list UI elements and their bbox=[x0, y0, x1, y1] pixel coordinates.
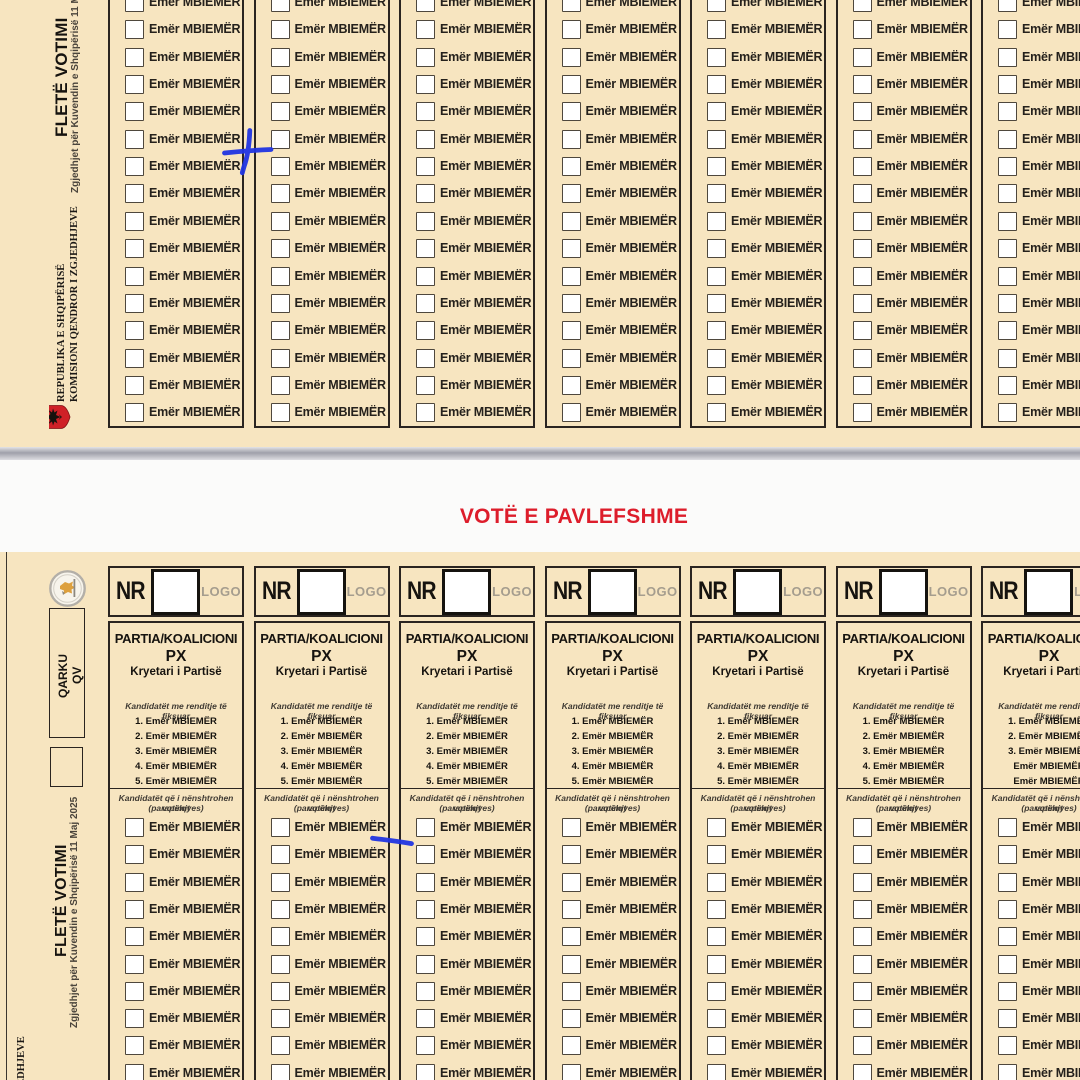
candidate-row: Emër MBIEMËR bbox=[838, 0, 970, 12]
candidate-name-label: Emër MBIEMËR bbox=[1022, 1066, 1080, 1080]
candidate-checkbox[interactable] bbox=[998, 403, 1017, 422]
candidate-checkbox[interactable] bbox=[416, 0, 435, 12]
candidate-checkbox[interactable] bbox=[853, 20, 872, 39]
candidate-checkbox[interactable] bbox=[271, 1036, 290, 1055]
candidate-checkbox[interactable] bbox=[562, 239, 581, 258]
candidate-name-label: Emër MBIEMËR bbox=[149, 296, 240, 310]
candidate-name-label: Emër MBIEMËR bbox=[1022, 405, 1080, 419]
candidate-checkbox[interactable] bbox=[853, 75, 872, 94]
candidate-row: Emër MBIEMËR bbox=[256, 927, 388, 946]
candidate-checkbox[interactable] bbox=[853, 267, 872, 286]
candidate-checkbox[interactable] bbox=[562, 955, 581, 974]
candidate-checkbox[interactable] bbox=[853, 1009, 872, 1028]
candidate-name-label: Emër MBIEMËR bbox=[149, 269, 240, 283]
candidate-checkbox[interactable] bbox=[125, 1064, 144, 1080]
candidate-checkbox[interactable] bbox=[853, 403, 872, 422]
candidate-name-label: Emër MBIEMËR bbox=[877, 0, 968, 9]
candidate-checkbox[interactable] bbox=[707, 130, 726, 149]
candidate-checkbox[interactable] bbox=[562, 157, 581, 176]
candidate-checkbox[interactable] bbox=[707, 1009, 726, 1028]
candidate-checkbox[interactable] bbox=[271, 239, 290, 258]
candidate-checkbox[interactable] bbox=[416, 403, 435, 422]
candidate-checkbox[interactable] bbox=[998, 927, 1017, 946]
candidate-checkbox[interactable] bbox=[125, 0, 144, 12]
candidate-name-label: Emër MBIEMËR bbox=[295, 1066, 386, 1080]
candidate-checkbox[interactable] bbox=[998, 20, 1017, 39]
candidate-checkbox[interactable] bbox=[998, 349, 1017, 368]
candidate-row: Emër MBIEMËR bbox=[983, 157, 1080, 176]
party-header: NRLOGO bbox=[108, 566, 244, 617]
candidate-checkbox[interactable] bbox=[562, 267, 581, 286]
candidate-checkbox[interactable] bbox=[853, 184, 872, 203]
candidate-row: Emër MBIEMËR bbox=[256, 184, 388, 203]
candidate-name-label: Emër MBIEMËR bbox=[149, 0, 240, 9]
candidate-checkbox[interactable] bbox=[416, 239, 435, 258]
candidate-name-label: Emër MBIEMËR bbox=[295, 77, 386, 91]
candidate-checkbox[interactable] bbox=[707, 900, 726, 919]
candidate-row: Emër MBIEMËR bbox=[547, 927, 679, 946]
candidate-checkbox[interactable] bbox=[416, 294, 435, 313]
candidate-checkbox[interactable] bbox=[271, 48, 290, 67]
candidate-checkbox[interactable] bbox=[707, 157, 726, 176]
candidate-checkbox[interactable] bbox=[707, 48, 726, 67]
candidate-checkbox[interactable] bbox=[562, 349, 581, 368]
candidate-name-label: Emër MBIEMËR bbox=[440, 957, 531, 971]
candidate-checkbox[interactable] bbox=[125, 900, 144, 919]
candidate-checkbox[interactable] bbox=[562, 48, 581, 67]
candidate-checkbox[interactable] bbox=[416, 102, 435, 121]
candidate-checkbox[interactable] bbox=[416, 20, 435, 39]
candidate-checkbox[interactable] bbox=[562, 102, 581, 121]
candidate-checkbox[interactable] bbox=[853, 982, 872, 1001]
candidate-name-label: Emër MBIEMËR bbox=[731, 847, 822, 861]
candidate-checkbox[interactable] bbox=[416, 1064, 435, 1080]
candidate-row: Emër MBIEMËR bbox=[983, 1036, 1080, 1055]
logo-placeholder-label: LOGO bbox=[200, 584, 242, 599]
candidate-checkbox[interactable] bbox=[125, 321, 144, 340]
candidate-checkbox[interactable] bbox=[853, 0, 872, 12]
candidate-checkbox[interactable] bbox=[707, 349, 726, 368]
candidate-checkbox[interactable] bbox=[707, 818, 726, 837]
candidate-checkbox[interactable] bbox=[562, 0, 581, 12]
candidate-checkbox[interactable] bbox=[562, 1064, 581, 1080]
candidate-checkbox[interactable] bbox=[125, 927, 144, 946]
candidate-checkbox[interactable] bbox=[271, 102, 290, 121]
candidate-checkbox[interactable] bbox=[853, 48, 872, 67]
candidate-name-label: Emër MBIEMËR bbox=[731, 241, 822, 255]
candidate-row: Emër MBIEMËR bbox=[401, 900, 533, 919]
candidate-checkbox[interactable] bbox=[125, 349, 144, 368]
candidate-checkbox[interactable] bbox=[562, 818, 581, 837]
fixed-candidate-name: 5. Emër MBIEMËR bbox=[547, 776, 679, 787]
candidate-checkbox[interactable] bbox=[416, 900, 435, 919]
candidate-name-label: Emër MBIEMËR bbox=[586, 269, 677, 283]
candidate-row: Emër MBIEMËR bbox=[547, 321, 679, 340]
candidate-checkbox[interactable] bbox=[707, 267, 726, 286]
candidate-row: Emër MBIEMËR bbox=[692, 349, 824, 368]
candidate-checkbox[interactable] bbox=[416, 982, 435, 1001]
candidate-checkbox[interactable] bbox=[271, 845, 290, 864]
candidate-row: Emër MBIEMËR bbox=[983, 927, 1080, 946]
candidate-checkbox[interactable] bbox=[562, 321, 581, 340]
candidate-checkbox[interactable] bbox=[416, 927, 435, 946]
candidate-name-label: Emër MBIEMËR bbox=[440, 405, 531, 419]
candidate-row: Emër MBIEMËR bbox=[692, 102, 824, 121]
candidate-checkbox[interactable] bbox=[271, 184, 290, 203]
candidate-name-label: Emër MBIEMËR bbox=[1022, 1038, 1080, 1052]
candidate-checkbox[interactable] bbox=[271, 927, 290, 946]
party-candidate-column: Emër MBIEMËREmër MBIEMËREmër MBIEMËREmër… bbox=[690, 0, 826, 428]
candidate-row: Emër MBIEMËR bbox=[838, 376, 970, 395]
candidate-name-label: Emër MBIEMËR bbox=[440, 1038, 531, 1052]
candidate-checkbox[interactable] bbox=[416, 157, 435, 176]
candidate-checkbox[interactable] bbox=[707, 845, 726, 864]
candidate-checkbox[interactable] bbox=[562, 403, 581, 422]
candidate-checkbox[interactable] bbox=[271, 403, 290, 422]
candidate-checkbox[interactable] bbox=[271, 982, 290, 1001]
candidate-name-label: Emër MBIEMËR bbox=[877, 1066, 968, 1080]
candidate-checkbox[interactable] bbox=[416, 267, 435, 286]
candidate-name-label: Emër MBIEMËR bbox=[149, 22, 240, 36]
candidate-checkbox[interactable] bbox=[125, 818, 144, 837]
candidate-name-label: Emër MBIEMËR bbox=[877, 104, 968, 118]
party-header: NRLOGO bbox=[399, 566, 535, 617]
candidate-checkbox[interactable] bbox=[562, 376, 581, 395]
candidate-checkbox[interactable] bbox=[271, 75, 290, 94]
candidate-row: Emër MBIEMËR bbox=[256, 294, 388, 313]
candidate-checkbox[interactable] bbox=[707, 212, 726, 231]
candidate-name-label: Emër MBIEMËR bbox=[586, 323, 677, 337]
candidate-checkbox[interactable] bbox=[998, 212, 1017, 231]
preferential-header-sub: (parapëlqyes) bbox=[547, 803, 679, 813]
candidate-checkbox[interactable] bbox=[416, 321, 435, 340]
candidate-checkbox[interactable] bbox=[271, 900, 290, 919]
empty-code-box bbox=[50, 747, 83, 787]
candidate-checkbox[interactable] bbox=[853, 239, 872, 258]
fixed-candidate-name: 3. Emër MBIEMËR bbox=[692, 746, 824, 757]
party-column: PARTIA/KOALICIONIPXKryetari i PartisëKan… bbox=[254, 621, 390, 1080]
candidate-name-label: Emër MBIEMËR bbox=[1022, 0, 1080, 9]
candidate-checkbox[interactable] bbox=[853, 1036, 872, 1055]
candidate-name-label: Emër MBIEMËR bbox=[149, 1038, 240, 1052]
candidate-checkbox[interactable] bbox=[271, 1009, 290, 1028]
candidate-checkbox[interactable] bbox=[271, 130, 290, 149]
candidate-checkbox[interactable] bbox=[562, 900, 581, 919]
candidate-row: Emër MBIEMËR bbox=[547, 818, 679, 837]
candidate-checkbox[interactable] bbox=[416, 1036, 435, 1055]
fixed-candidate-name: 3. Emër MBIEMËR bbox=[838, 746, 970, 757]
candidate-checkbox[interactable] bbox=[853, 376, 872, 395]
candidate-row: Emër MBIEMËR bbox=[692, 321, 824, 340]
candidate-checkbox[interactable] bbox=[271, 212, 290, 231]
candidate-checkbox[interactable] bbox=[562, 184, 581, 203]
candidate-checkbox[interactable] bbox=[271, 955, 290, 974]
candidate-checkbox[interactable] bbox=[562, 1009, 581, 1028]
nr-label: NR bbox=[407, 577, 436, 606]
candidate-checkbox[interactable] bbox=[998, 1064, 1017, 1080]
candidate-checkbox[interactable] bbox=[562, 927, 581, 946]
candidate-checkbox[interactable] bbox=[416, 130, 435, 149]
candidate-row: Emër MBIEMËR bbox=[692, 184, 824, 203]
candidate-checkbox[interactable] bbox=[125, 20, 144, 39]
candidate-checkbox[interactable] bbox=[125, 1009, 144, 1028]
candidate-checkbox[interactable] bbox=[998, 1036, 1017, 1055]
candidate-checkbox[interactable] bbox=[853, 873, 872, 892]
candidate-name-label: Emër MBIEMËR bbox=[731, 159, 822, 173]
candidate-name-label: Emër MBIEMËR bbox=[586, 1038, 677, 1052]
candidate-row: Emër MBIEMËR bbox=[256, 157, 388, 176]
candidate-row: Emër MBIEMËR bbox=[838, 294, 970, 313]
candidate-row: Emër MBIEMËR bbox=[110, 20, 242, 39]
party-leader-label: Kryetari i Partisë bbox=[983, 666, 1080, 678]
candidate-row: Emër MBIEMËR bbox=[692, 20, 824, 39]
candidate-checkbox[interactable] bbox=[562, 130, 581, 149]
candidate-checkbox[interactable] bbox=[416, 376, 435, 395]
candidate-name-label: Emër MBIEMËR bbox=[440, 323, 531, 337]
candidate-checkbox[interactable] bbox=[853, 845, 872, 864]
candidate-name-label: Emër MBIEMËR bbox=[295, 132, 386, 146]
candidate-checkbox[interactable] bbox=[562, 212, 581, 231]
candidate-checkbox[interactable] bbox=[998, 900, 1017, 919]
candidate-row: Emër MBIEMËR bbox=[692, 955, 824, 974]
candidate-row: Emër MBIEMËR bbox=[110, 955, 242, 974]
candidate-name-label: Emër MBIEMËR bbox=[149, 50, 240, 64]
candidate-checkbox[interactable] bbox=[853, 900, 872, 919]
party-code-label: PX bbox=[401, 648, 533, 666]
candidate-checkbox[interactable] bbox=[998, 376, 1017, 395]
candidate-checkbox[interactable] bbox=[998, 321, 1017, 340]
candidate-checkbox[interactable] bbox=[271, 20, 290, 39]
candidate-checkbox[interactable] bbox=[271, 873, 290, 892]
candidate-name-label: Emër MBIEMËR bbox=[295, 378, 386, 392]
candidate-checkbox[interactable] bbox=[271, 294, 290, 313]
party-coalition-label: PARTIA/KOALICIONI bbox=[401, 631, 533, 646]
candidate-checkbox[interactable] bbox=[562, 294, 581, 313]
candidate-checkbox[interactable] bbox=[707, 403, 726, 422]
candidate-checkbox[interactable] bbox=[998, 48, 1017, 67]
candidate-checkbox[interactable] bbox=[416, 955, 435, 974]
candidate-checkbox[interactable] bbox=[416, 1009, 435, 1028]
candidate-checkbox[interactable] bbox=[125, 239, 144, 258]
candidate-checkbox[interactable] bbox=[853, 102, 872, 121]
candidate-checkbox[interactable] bbox=[271, 1064, 290, 1080]
candidate-row: Emër MBIEMËR bbox=[838, 955, 970, 974]
candidate-checkbox[interactable] bbox=[562, 1036, 581, 1055]
candidate-checkbox[interactable] bbox=[707, 0, 726, 12]
candidate-checkbox[interactable] bbox=[271, 267, 290, 286]
candidate-checkbox[interactable] bbox=[271, 321, 290, 340]
candidate-checkbox[interactable] bbox=[853, 130, 872, 149]
candidate-checkbox[interactable] bbox=[998, 955, 1017, 974]
candidate-checkbox[interactable] bbox=[707, 376, 726, 395]
candidate-row: Emër MBIEMËR bbox=[256, 818, 388, 837]
logo-placeholder-label: LOGO bbox=[637, 584, 679, 599]
candidate-checkbox[interactable] bbox=[853, 1064, 872, 1080]
candidate-checkbox[interactable] bbox=[707, 102, 726, 121]
candidate-checkbox[interactable] bbox=[271, 0, 290, 12]
candidate-checkbox[interactable] bbox=[998, 267, 1017, 286]
candidate-checkbox[interactable] bbox=[416, 48, 435, 67]
candidate-name-label: Emër MBIEMËR bbox=[440, 214, 531, 228]
candidate-row: Emër MBIEMËR bbox=[401, 102, 533, 121]
candidate-checkbox[interactable] bbox=[998, 184, 1017, 203]
candidate-checkbox[interactable] bbox=[416, 75, 435, 94]
candidate-checkbox[interactable] bbox=[125, 130, 144, 149]
candidate-name-label: Emër MBIEMËR bbox=[295, 50, 386, 64]
fixed-candidate-name: 2. Emër MBIEMËR bbox=[401, 731, 533, 742]
candidate-checkbox[interactable] bbox=[125, 102, 144, 121]
candidate-name-label: Emër MBIEMËR bbox=[586, 820, 677, 834]
candidate-row: Emër MBIEMËR bbox=[256, 130, 388, 149]
candidate-checkbox[interactable] bbox=[271, 376, 290, 395]
candidate-checkbox[interactable] bbox=[125, 75, 144, 94]
candidate-row: Emër MBIEMËR bbox=[983, 349, 1080, 368]
candidate-checkbox[interactable] bbox=[125, 48, 144, 67]
candidate-checkbox[interactable] bbox=[853, 294, 872, 313]
candidate-checkbox[interactable] bbox=[998, 845, 1017, 864]
candidate-name-label: Emër MBIEMËR bbox=[586, 1066, 677, 1080]
candidate-checkbox[interactable] bbox=[853, 157, 872, 176]
candidate-row: Emër MBIEMËR bbox=[692, 927, 824, 946]
candidate-checkbox[interactable] bbox=[853, 212, 872, 231]
candidate-checkbox[interactable] bbox=[998, 873, 1017, 892]
candidate-checkbox[interactable] bbox=[125, 955, 144, 974]
candidate-checkbox[interactable] bbox=[125, 845, 144, 864]
candidate-checkbox[interactable] bbox=[998, 982, 1017, 1001]
candidate-name-label: Emër MBIEMËR bbox=[877, 77, 968, 91]
candidate-checkbox[interactable] bbox=[125, 184, 144, 203]
candidate-name-label: Emër MBIEMËR bbox=[149, 351, 240, 365]
candidate-checkbox[interactable] bbox=[707, 982, 726, 1001]
candidate-checkbox[interactable] bbox=[125, 267, 144, 286]
fixed-candidate-name: 2. Emër MBIEMËR bbox=[110, 731, 242, 742]
candidate-row: Emër MBIEMËR bbox=[110, 982, 242, 1001]
party-code-label: PX bbox=[692, 648, 824, 666]
candidate-checkbox[interactable] bbox=[125, 982, 144, 1001]
candidate-checkbox[interactable] bbox=[416, 184, 435, 203]
candidate-checkbox[interactable] bbox=[125, 403, 144, 422]
candidate-checkbox[interactable] bbox=[271, 818, 290, 837]
candidate-checkbox[interactable] bbox=[562, 845, 581, 864]
candidate-checkbox[interactable] bbox=[416, 212, 435, 231]
candidate-checkbox[interactable] bbox=[998, 130, 1017, 149]
candidate-row: Emër MBIEMËR bbox=[547, 239, 679, 258]
candidate-checkbox[interactable] bbox=[853, 955, 872, 974]
candidate-checkbox[interactable] bbox=[998, 0, 1017, 12]
logo-placeholder-label: LOGO bbox=[491, 584, 533, 599]
candidate-checkbox[interactable] bbox=[562, 20, 581, 39]
candidate-name-label: Emër MBIEMËR bbox=[877, 241, 968, 255]
candidate-checkbox[interactable] bbox=[998, 294, 1017, 313]
candidate-row: Emër MBIEMËR bbox=[983, 845, 1080, 864]
candidate-checkbox[interactable] bbox=[562, 982, 581, 1001]
candidate-checkbox[interactable] bbox=[707, 873, 726, 892]
candidate-name-label: Emër MBIEMËR bbox=[440, 820, 531, 834]
candidate-row: Emër MBIEMËR bbox=[401, 157, 533, 176]
candidate-checkbox[interactable] bbox=[562, 75, 581, 94]
candidate-checkbox[interactable] bbox=[707, 75, 726, 94]
candidate-checkbox[interactable] bbox=[998, 75, 1017, 94]
candidate-checkbox[interactable] bbox=[853, 349, 872, 368]
candidate-row: Emër MBIEMËR bbox=[110, 130, 242, 149]
candidate-row: Emër MBIEMËR bbox=[547, 212, 679, 231]
candidate-name-label: Emër MBIEMËR bbox=[295, 847, 386, 861]
candidate-checkbox[interactable] bbox=[562, 873, 581, 892]
candidate-name-label: Emër MBIEMËR bbox=[586, 984, 677, 998]
candidate-checkbox[interactable] bbox=[707, 20, 726, 39]
candidate-checkbox[interactable] bbox=[998, 239, 1017, 258]
candidate-checkbox[interactable] bbox=[416, 818, 435, 837]
candidate-row: Emër MBIEMËR bbox=[983, 873, 1080, 892]
candidate-checkbox[interactable] bbox=[998, 818, 1017, 837]
candidate-row: Emër MBIEMËR bbox=[401, 927, 533, 946]
candidate-name-label: Emër MBIEMËR bbox=[586, 104, 677, 118]
candidate-checkbox[interactable] bbox=[707, 955, 726, 974]
candidate-checkbox[interactable] bbox=[707, 927, 726, 946]
candidate-name-label: Emër MBIEMËR bbox=[295, 269, 386, 283]
fixed-candidate-name: 4. Emër MBIEMËR bbox=[110, 761, 242, 772]
nr-label: NR bbox=[844, 577, 873, 606]
candidate-checkbox[interactable] bbox=[416, 349, 435, 368]
candidate-name-label: Emër MBIEMËR bbox=[295, 820, 386, 834]
party-leader-label: Kryetari i Partisë bbox=[692, 666, 824, 678]
candidate-name-label: Emër MBIEMËR bbox=[731, 323, 822, 337]
candidate-checkbox[interactable] bbox=[125, 376, 144, 395]
fixed-candidate-name: 4. Emër MBIEMËR bbox=[401, 761, 533, 772]
candidate-checkbox[interactable] bbox=[853, 321, 872, 340]
candidate-row: Emër MBIEMËR bbox=[256, 955, 388, 974]
candidate-checkbox[interactable] bbox=[853, 927, 872, 946]
candidate-checkbox[interactable] bbox=[998, 102, 1017, 121]
candidate-name-label: Emër MBIEMËR bbox=[877, 405, 968, 419]
candidate-name-label: Emër MBIEMËR bbox=[149, 875, 240, 889]
candidate-name-label: Emër MBIEMËR bbox=[1022, 1011, 1080, 1025]
candidate-row: Emër MBIEMËR bbox=[110, 349, 242, 368]
candidate-name-label: Emër MBIEMËR bbox=[877, 1038, 968, 1052]
candidate-row: Emër MBIEMËR bbox=[838, 873, 970, 892]
fixed-candidate-name: 5. Emër MBIEMËR bbox=[256, 776, 388, 787]
candidate-checkbox[interactable] bbox=[271, 157, 290, 176]
candidate-checkbox[interactable] bbox=[416, 845, 435, 864]
candidate-row: Emër MBIEMËR bbox=[983, 75, 1080, 94]
candidate-checkbox[interactable] bbox=[125, 294, 144, 313]
candidate-checkbox[interactable] bbox=[853, 818, 872, 837]
candidate-checkbox[interactable] bbox=[125, 157, 144, 176]
candidate-checkbox[interactable] bbox=[271, 349, 290, 368]
candidate-checkbox[interactable] bbox=[998, 1009, 1017, 1028]
candidate-name-label: Emër MBIEMËR bbox=[1022, 957, 1080, 971]
candidate-checkbox[interactable] bbox=[707, 294, 726, 313]
candidate-row: Emër MBIEMËR bbox=[401, 818, 533, 837]
candidate-row: Emër MBIEMËR bbox=[547, 376, 679, 395]
candidate-checkbox[interactable] bbox=[125, 212, 144, 231]
candidate-checkbox[interactable] bbox=[707, 1064, 726, 1080]
candidate-name-label: Emër MBIEMËR bbox=[440, 984, 531, 998]
candidate-checkbox[interactable] bbox=[707, 321, 726, 340]
candidate-checkbox[interactable] bbox=[707, 184, 726, 203]
fixed-candidate-name: 4. Emër MBIEMËR bbox=[547, 761, 679, 772]
candidate-name-label: Emër MBIEMËR bbox=[877, 902, 968, 916]
candidate-checkbox[interactable] bbox=[998, 157, 1017, 176]
candidate-checkbox[interactable] bbox=[416, 873, 435, 892]
candidate-checkbox[interactable] bbox=[125, 873, 144, 892]
candidate-checkbox[interactable] bbox=[707, 239, 726, 258]
candidate-checkbox[interactable] bbox=[707, 1036, 726, 1055]
preferential-header-sub: (parapëlqyes) bbox=[110, 803, 242, 813]
candidate-row: Emër MBIEMËR bbox=[401, 1064, 533, 1080]
candidate-checkbox[interactable] bbox=[125, 1036, 144, 1055]
candidate-name-label: Emër MBIEMËR bbox=[1022, 875, 1080, 889]
